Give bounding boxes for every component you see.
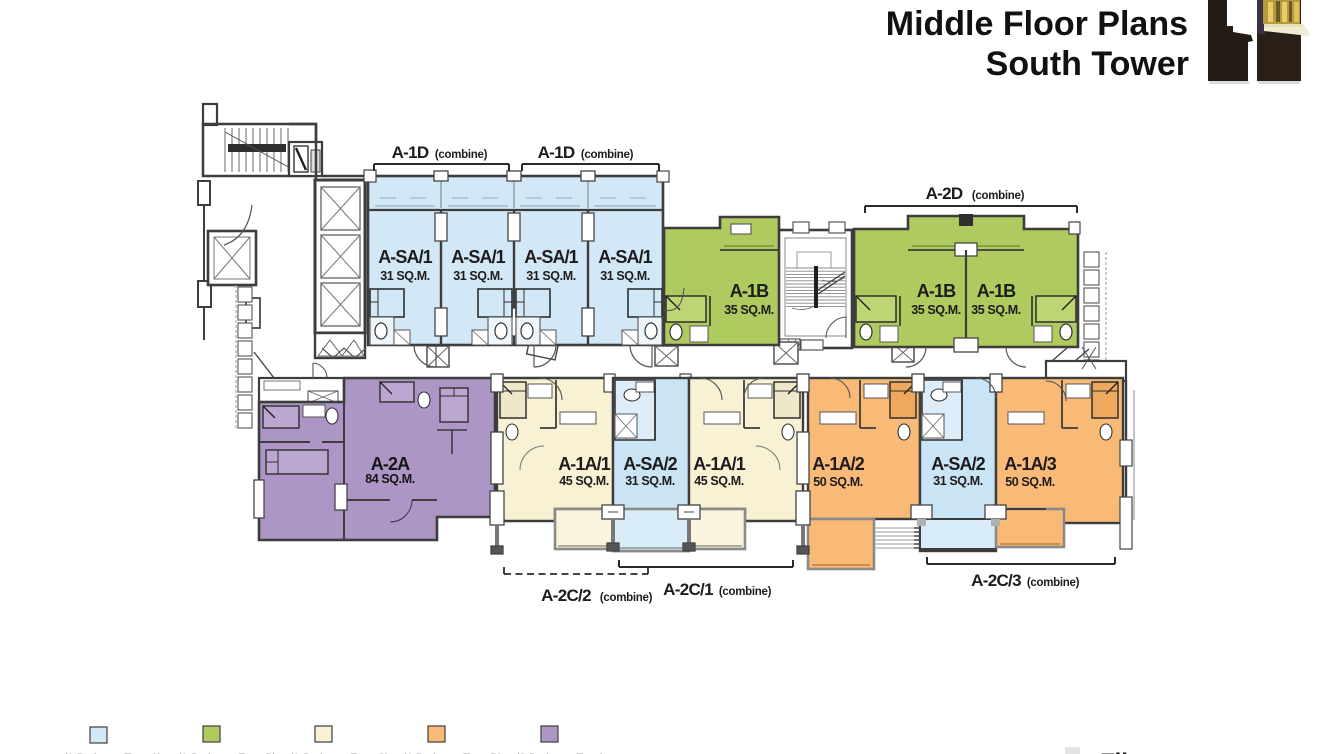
svg-text:84 SQ.M.: 84 SQ.M. xyxy=(365,472,415,486)
svg-text:A-1A/1: A-1A/1 xyxy=(693,454,746,474)
svg-text:Middle Floor Plans: Middle Floor Plans xyxy=(886,5,1188,43)
svg-text:(combine): (combine) xyxy=(581,149,634,161)
svg-text:A-SA/1: A-SA/1 xyxy=(598,247,652,267)
svg-text:35 SQ.M.: 35 SQ.M. xyxy=(971,303,1021,317)
svg-text:A-SA/1: A-SA/1 xyxy=(524,247,578,267)
svg-text:South Tower: South Tower xyxy=(986,45,1189,83)
svg-text:A-SA/1: A-SA/1 xyxy=(451,247,505,267)
svg-text:A-1B: A-1B xyxy=(977,281,1016,301)
svg-text:A-1A/3: A-1A/3 xyxy=(1004,454,1057,474)
svg-text:31 SQ.M.: 31 SQ.M. xyxy=(600,269,650,283)
svg-text:50 SQ.M.: 50 SQ.M. xyxy=(1005,475,1055,489)
svg-text:A-2C/1: A-2C/1 xyxy=(663,580,713,599)
svg-text:45 SQ.M.: 45 SQ.M. xyxy=(559,474,609,488)
svg-text:35 SQ.M.: 35 SQ.M. xyxy=(724,303,774,317)
svg-text:A-1B: A-1B xyxy=(917,281,956,301)
svg-text:aaaa aaaa aaaa aaa a: aaaa aaaa aaaa aaa a xyxy=(1133,748,1314,754)
svg-text:31 SQ.M.: 31 SQ.M. xyxy=(526,269,576,283)
svg-text:35 SQ.M.: 35 SQ.M. xyxy=(911,303,961,317)
svg-text:A-2C/3: A-2C/3 xyxy=(971,571,1021,590)
svg-text:A-SA/2: A-SA/2 xyxy=(623,454,677,474)
svg-text:A-1A/2: A-1A/2 xyxy=(812,454,865,474)
svg-text:A-1A/1: A-1A/1 xyxy=(558,454,611,474)
svg-text:A-2C/2: A-2C/2 xyxy=(541,586,591,605)
svg-text:31 SQ.M.: 31 SQ.M. xyxy=(625,474,675,488)
svg-text:(combine): (combine) xyxy=(435,149,488,161)
svg-text:A-2D: A-2D xyxy=(926,184,963,203)
svg-text:45 SQ.M.: 45 SQ.M. xyxy=(694,474,744,488)
svg-text:Fil: Fil xyxy=(1100,749,1128,754)
svg-text:A-1D: A-1D xyxy=(392,143,429,162)
svg-text:(combine): (combine) xyxy=(600,592,653,604)
svg-text:31 SQ.M.: 31 SQ.M. xyxy=(453,269,503,283)
svg-text:A-2A: A-2A xyxy=(371,454,410,474)
svg-text:(combine): (combine) xyxy=(719,586,772,598)
svg-text:(combine): (combine) xyxy=(1027,577,1080,589)
svg-text:A-1B: A-1B xyxy=(730,281,769,301)
svg-text:(combine): (combine) xyxy=(972,190,1025,202)
svg-text:50 SQ.M.: 50 SQ.M. xyxy=(813,475,863,489)
svg-text:31 SQ.M.: 31 SQ.M. xyxy=(380,269,430,283)
svg-text:A-SA/2: A-SA/2 xyxy=(931,454,985,474)
svg-text:A-SA/1: A-SA/1 xyxy=(378,247,432,267)
svg-text:31 SQ.M.: 31 SQ.M. xyxy=(933,474,983,488)
svg-text:A-1D: A-1D xyxy=(538,143,575,162)
